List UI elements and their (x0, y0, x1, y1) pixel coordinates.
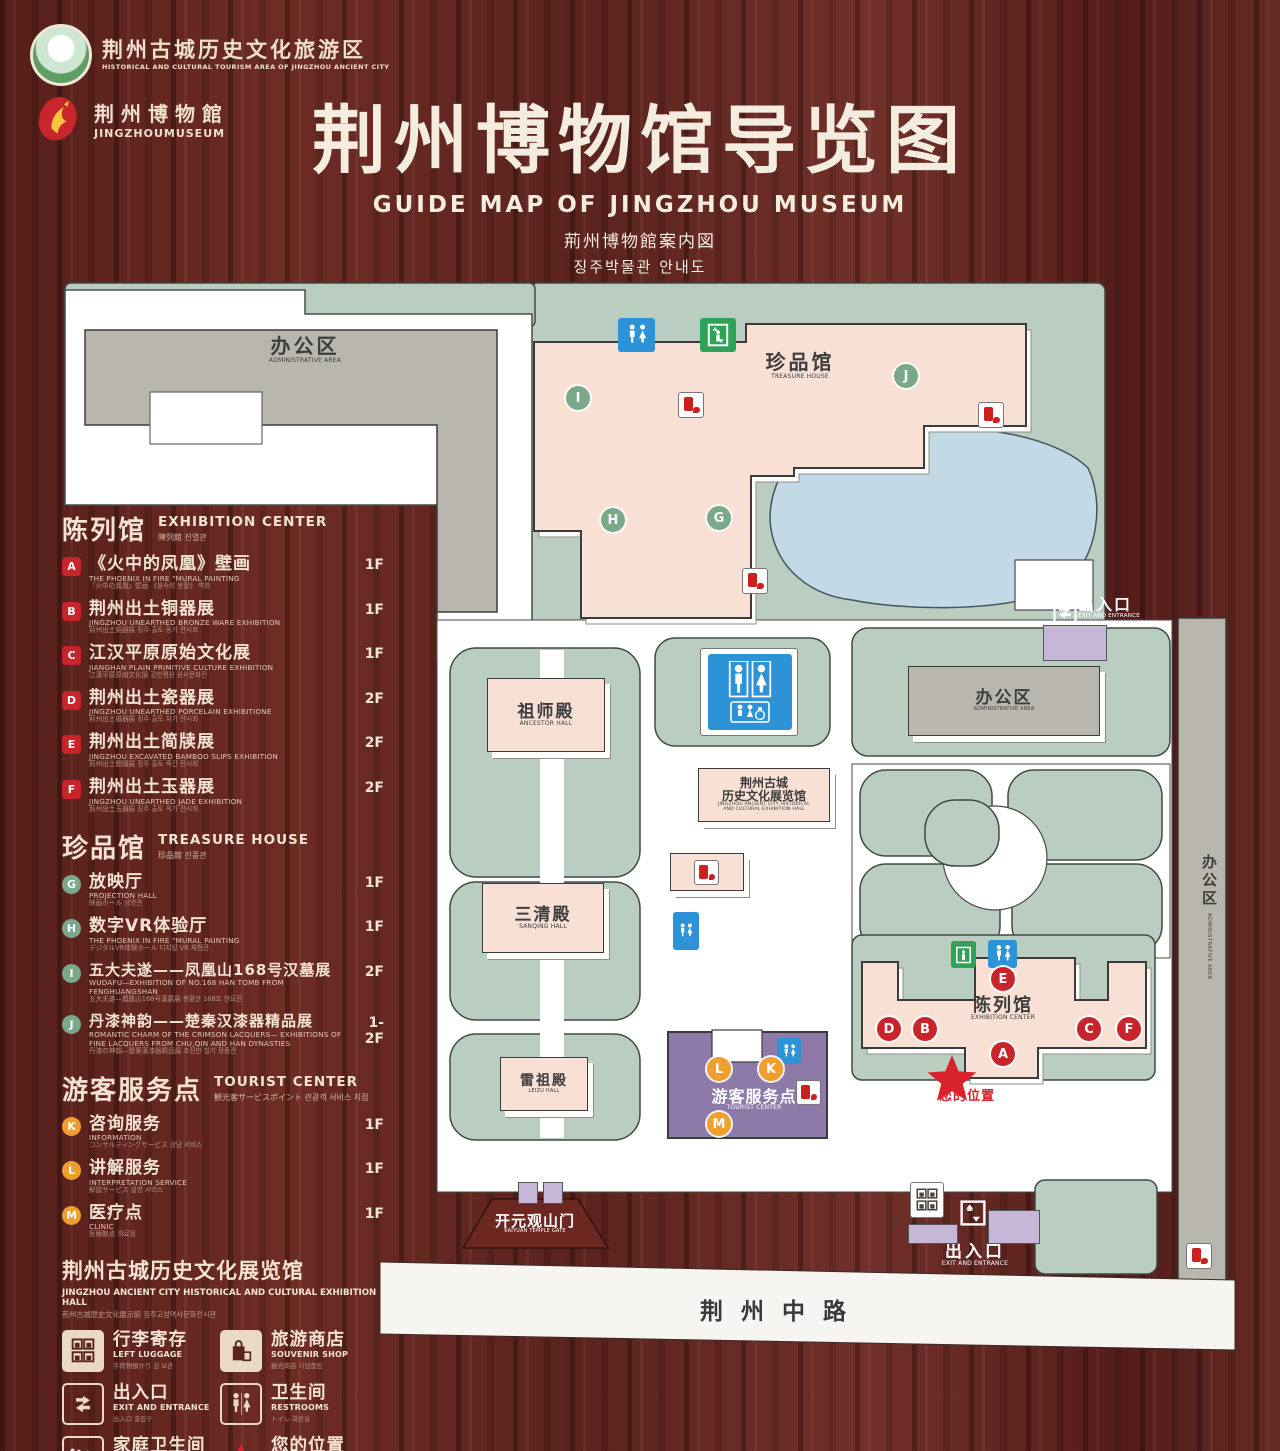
legend-item-M: M 医疗点CLINIC医療拠点 의료점 1F (62, 1204, 384, 1240)
legend-sidebar: 陈列馆 EXHIBITION CENTER 陳列館 진열관 A 《火中的凤凰》壁… (62, 496, 384, 1451)
marker-M: M (62, 1206, 81, 1225)
label-kaiyuan-gate: 开元观山门 KAIYUAN TEMPLE GATE (475, 1213, 595, 1235)
floor-label: 2F (354, 780, 384, 796)
label-exhibition-center: 陈列馆 EXHIBITION CENTER (945, 996, 1061, 1022)
label-sanqing-hall: 三清殿 SANQING HALL (515, 906, 572, 931)
legend-item-K: K 咨询服务INFORMATIONコンサルティングサービス 상담 서비스 1F (62, 1115, 384, 1151)
page-title-en: GUIDE MAP OF JINGZHOU MUSEUM (0, 192, 1280, 218)
legend-item-B: B 荆州出土铜器展JINGZHOU UNEARTHED BRONZE WARE … (62, 600, 384, 636)
accessible-elevator-icon (678, 392, 704, 418)
admin-building-east: 办公区 ADMINISTRATIVE AREA (908, 666, 1100, 736)
marker-F: F (62, 780, 81, 799)
map-marker-I: I (566, 386, 590, 410)
tourism-area-emblem-icon (30, 24, 92, 86)
title-block: 荆州博物馆导览图 GUIDE MAP OF JINGZHOU MUSEUM 荊州… (0, 104, 1280, 277)
marker-K: K (62, 1117, 81, 1136)
family-restroom-icon (62, 1436, 104, 1451)
restroom-family-icon (708, 654, 792, 730)
ancestor-hall-building: 祖师殿 ANCESTOR HALL (487, 678, 605, 752)
restroom-icon (988, 940, 1017, 968)
left-luggage-icon (910, 1182, 944, 1218)
legend-restrooms: 卫生间RESTROOMSトイレ 화장실 (220, 1383, 384, 1425)
restroom-icon (673, 912, 699, 950)
map-marker-G: G (707, 506, 731, 530)
south-lawn (1035, 1180, 1157, 1274)
label-treasure-house: 珍品馆 TREASURE HOUSE (735, 352, 865, 380)
map-marker-L: L (707, 1057, 731, 1081)
outlined-building (150, 392, 262, 444)
label-leizu-hall: 雷祖殿 LEIZU HALL (520, 1074, 568, 1095)
legend-item-J: J 丹漆神韵——楚秦汉漆器精品展ROMANTIC CHARM OF THE CR… (62, 1013, 384, 1055)
leizu-hall-building: 雷祖殿 LEIZU HALL (500, 1057, 588, 1111)
marker-D: D (62, 691, 81, 710)
map-marker-H: H (601, 508, 625, 532)
label-road: 荆州中路 (700, 1292, 864, 1326)
gate-pillar (518, 1182, 538, 1204)
map-marker-J: J (894, 364, 918, 388)
section-title-en: EXHIBITION CENTER (158, 510, 327, 530)
legend-section-treasure-house: 珍品馆 TREASURE HOUSE 珍品館 진품관 (62, 828, 384, 865)
map-marker-K: K (759, 1057, 783, 1081)
map-marker-C: C (1077, 1017, 1101, 1041)
floor-label: 1F (354, 1117, 384, 1133)
label-admin-east: 办公区 ADMINISTRATIVE AREA (974, 689, 1035, 713)
floor-label: 1F (354, 919, 384, 935)
legend-item-A: A 《火中的凤凰》壁画THE PHOENIX IN FIRE "MURAL PA… (62, 555, 384, 591)
marker-J: J (62, 1015, 81, 1034)
page-title-ja: 荊州博物館案内図 (0, 227, 1280, 252)
accessible-elevator-icon (1186, 1243, 1212, 1269)
accessible-elevator-icon (978, 402, 1004, 428)
legend-hall-title: 荆州古城历史文化展览馆 JINGZHOU ANCIENT CITY HISTOR… (62, 1255, 384, 1320)
elevator-icon (700, 318, 736, 352)
floor-label: 2F (354, 964, 384, 980)
marker-A: A (62, 557, 81, 576)
floor-label: 1F (354, 602, 384, 618)
accessible-elevator-icon (694, 860, 719, 885)
label-exit-north: 出入口 EXIT AND ENTRANCE (1078, 596, 1168, 619)
map-marker-F: F (1117, 1017, 1141, 1041)
legend-item-G: G 放映厅PROJECTION HALL映画ホール 상영관 1F (62, 873, 384, 909)
marker-I: I (62, 964, 81, 983)
floor-label: 1F (354, 1161, 384, 1177)
floor-label: 1-2F (354, 1015, 384, 1047)
entrance-pad (908, 1224, 958, 1244)
label-admin-strip: 办公区 ADMINISTRATIVE AREA (1184, 852, 1220, 982)
entrance-pad (1043, 625, 1107, 661)
label-your-location: 您的位置 (922, 1090, 1012, 1104)
tourism-area-name-zh: 荆州古城历史文化旅游区 (102, 39, 389, 62)
elevator-icon (951, 941, 976, 968)
marker-E: E (62, 735, 81, 754)
legend-icon-grid: 行李寄存LEFT LUGGAGE手荷物預かり 짐 보관 旅游商店SOUVENIR… (62, 1330, 384, 1451)
label-admin-northwest: 办公区 ADMINISTRATIVE AREA (220, 336, 390, 364)
floor-label: 1F (354, 1206, 384, 1222)
label-ancestor-hall: 祖师殿 ANCESTOR HALL (518, 703, 575, 728)
section-title-sub: 陳列館 진열관 (158, 532, 327, 543)
tourism-area-name-en: HISTORICAL AND CULTURAL TOURISM AREA OF … (102, 63, 389, 71)
exit-entrance-icon (62, 1383, 104, 1425)
label-city-exhibition-hall: 荆州古城 历史文化展览馆 JINGZHOU ANCIENT CITY HISTO… (718, 777, 810, 813)
city-exhibition-hall-building: 荆州古城 历史文化展览馆 JINGZHOU ANCIENT CITY HISTO… (698, 768, 830, 822)
legend-item-C: C 江汉平原原始文化展JIANGHAN PLAIN PRIMITIVE CULT… (62, 644, 384, 680)
legend-item-L: L 讲解服务INTERPRETATION SERVICE解説サービス 설명 서비… (62, 1159, 384, 1195)
legend-section-tourist-center: 游客服务点 TOURIST CENTER 観光客サービスポイント 관광객 서비스… (62, 1070, 384, 1107)
section-title-zh: 陈列馆 (62, 510, 146, 547)
map-marker-A: A (991, 1042, 1015, 1066)
left-luggage-icon (62, 1330, 104, 1372)
accessible-elevator-icon (742, 568, 768, 594)
marker-B: B (62, 602, 81, 621)
guide-map-sign: 荆州古城历史文化旅游区 HISTORICAL AND CULTURAL TOUR… (0, 0, 1280, 1451)
legend-section-exhibition-center: 陈列馆 EXHIBITION CENTER 陳列館 진열관 (62, 510, 384, 547)
legend-item-D: D 荆州出土瓷器展JINGZHOU UNEARTHED PORCELAIN EX… (62, 689, 384, 725)
restroom-icon (777, 1038, 801, 1064)
legend-your-location: 您的位置YOUR LOCATIONあなたの位置 당신의 위치 (220, 1436, 384, 1451)
page-title-ko: 징주박물관 안내도 (0, 256, 1280, 277)
page-title: 荆州博物馆导览图 (0, 104, 1280, 178)
map-marker-D: D (877, 1017, 901, 1041)
restroom-icon (220, 1383, 262, 1425)
accessible-elevator-icon (796, 1080, 821, 1105)
tourism-area-logo: 荆州古城历史文化旅游区 HISTORICAL AND CULTURAL TOUR… (30, 24, 389, 86)
legend-item-H: H 数字VR体验厅THE PHOENIX IN FIRE "MURAL PAIN… (62, 917, 384, 953)
marker-H: H (62, 919, 81, 938)
floor-label: 1F (354, 557, 384, 573)
sanqing-hall-building: 三清殿 SANQING HALL (482, 883, 604, 953)
legend-souvenir-shop: 旅游商店SOUVENIR SHOP観光商店 기념품점 (220, 1330, 384, 1372)
floor-label: 2F (354, 691, 384, 707)
legend-item-E: E 荆州出土简牍展JINGZHOU EXCAVATED BAMBOO SLIPS… (62, 733, 384, 769)
marker-L: L (62, 1161, 81, 1180)
gate-pillar (543, 1182, 563, 1204)
floor-label: 2F (354, 735, 384, 751)
legend-item-F: F 荆州出土玉器展JINGZHOU UNEARTHED JADE EXHIBIT… (62, 778, 384, 814)
marker-C: C (62, 646, 81, 665)
your-location-star-icon (220, 1436, 262, 1451)
entrance-pad (988, 1210, 1040, 1244)
exit-entrance-icon (960, 1200, 986, 1226)
marker-G: G (62, 875, 81, 894)
legend-item-I: I 五大夫遂——凤凰山168号汉墓展WUDAFU—EXHIBITION OF N… (62, 962, 384, 1004)
souvenir-shop-icon (220, 1330, 262, 1372)
legend-exit-entrance: 出入口EXIT AND ENTRANCE出入口 출입구 (62, 1383, 220, 1425)
legend-family-restrooms: 家庭卫生间FAMILY RESTROOMS家族用トイレ 가족 화장실 (62, 1436, 220, 1451)
map-marker-M: M (707, 1112, 731, 1136)
floor-label: 1F (354, 875, 384, 891)
map-marker-B: B (913, 1017, 937, 1041)
garden-island (925, 800, 999, 866)
exit-entrance-icon (1053, 600, 1077, 624)
floor-label: 1F (354, 646, 384, 662)
map-marker-E: E (991, 967, 1015, 991)
legend-left-luggage: 行李寄存LEFT LUGGAGE手荷物預かり 짐 보관 (62, 1330, 220, 1372)
restroom-icon (618, 318, 655, 352)
label-exit-south: 出入口 EXIT AND ENTRANCE (915, 1243, 1035, 1268)
